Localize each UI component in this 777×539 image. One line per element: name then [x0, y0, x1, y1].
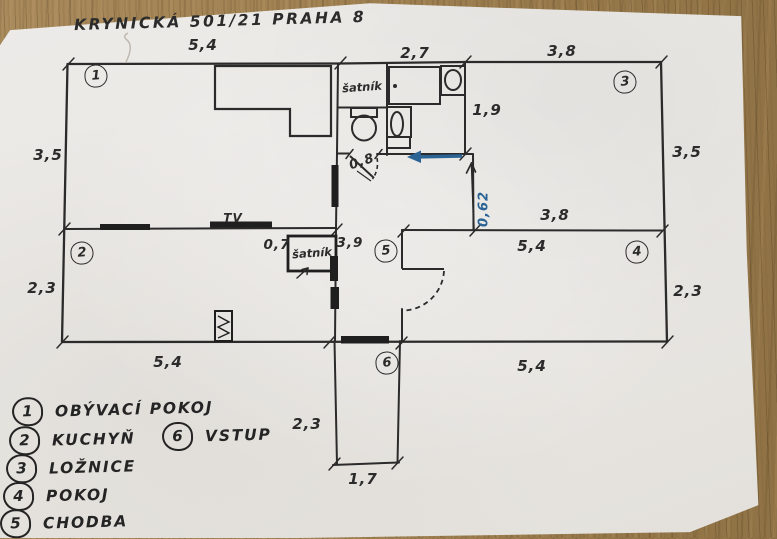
dim-entry-width: 1,7 — [348, 470, 378, 488]
legend-label-kitchen: KUCHYŇ — [52, 429, 136, 449]
pencil-scribble — [125, 33, 131, 62]
sideboard-bar — [100, 224, 150, 230]
closet-lower-label: šatník — [292, 245, 333, 262]
dim-bottom-left: 5,4 — [153, 353, 183, 371]
room4-door-arc — [405, 271, 445, 311]
legend-circle-1: 1 — [12, 397, 44, 427]
dim-top-left: 5,4 — [188, 36, 218, 54]
closet-upper-label: šatník — [342, 79, 383, 96]
legend-label-hall: CHODBA — [43, 512, 128, 532]
closet-arrow-mark — [297, 268, 308, 278]
kitchen-appliance-icon — [215, 311, 232, 341]
legend-label-room4: POKOJ — [46, 485, 110, 505]
legend-item-entry: 6 VSTUP — [162, 420, 272, 452]
legend-label-bedroom: LOŽNICE — [49, 457, 136, 477]
sink-icon — [387, 107, 411, 148]
legend-label-living: OBÝVACÍ POKOJ — [55, 398, 214, 420]
drain-dot — [393, 84, 397, 88]
dim-bath-depth: 1,9 — [472, 101, 502, 119]
legend-circle-3: 3 — [6, 454, 38, 484]
tv-label: TV — [223, 211, 242, 225]
dim-wall-offset: 0,62 — [477, 191, 492, 227]
wardrobe-bar-lower — [331, 287, 340, 309]
legend-circle-4: 4 — [3, 482, 35, 512]
bathroom-fixtures — [351, 66, 465, 148]
wardrobe-bar-upper — [332, 165, 339, 207]
living-room-cabinet — [215, 66, 331, 136]
blue-left-arrow-icon — [407, 151, 462, 164]
dim-left-upper: 3,5 — [33, 146, 63, 164]
photo-of-floor-plan: KRYNICKÁ 501/21 PRAHA 8 5,4 2,7 3,8 3,5 … — [0, 0, 777, 538]
legend-circle-2: 2 — [9, 426, 41, 456]
dim-left-lower: 2,3 — [27, 279, 57, 297]
legend-item-bedroom: 3 LOŽNICE — [6, 451, 137, 483]
washer-icon — [441, 66, 465, 95]
dim-entry-length: 2,3 — [292, 415, 322, 433]
dim-mid-right-upper: 3,8 — [540, 206, 570, 224]
wall-bars — [100, 165, 389, 344]
dim-mid-right-lower: 5,4 — [517, 237, 547, 255]
dim-hall-length: 3,9 — [337, 235, 364, 251]
legend-label-entry: VSTUP — [205, 425, 272, 445]
legend-item-hall: 5 CHODBA — [0, 506, 128, 538]
dim-closet-depth: 0,7 — [264, 237, 291, 253]
legend-circle-6: 6 — [162, 422, 194, 452]
toilet-icon — [351, 108, 377, 141]
legend-circle-5: 5 — [0, 509, 31, 539]
entry-door-bar — [341, 336, 389, 344]
wardrobe-bar-mid — [330, 256, 338, 281]
dim-top-middle: 2,7 — [400, 44, 430, 62]
door-swings — [350, 156, 444, 311]
dim-top-right: 3,8 — [547, 42, 577, 60]
dim-right-lower: 2,3 — [673, 282, 703, 300]
dim-right-upper: 3,5 — [672, 143, 702, 161]
dim-bottom-right: 5,4 — [517, 357, 547, 375]
